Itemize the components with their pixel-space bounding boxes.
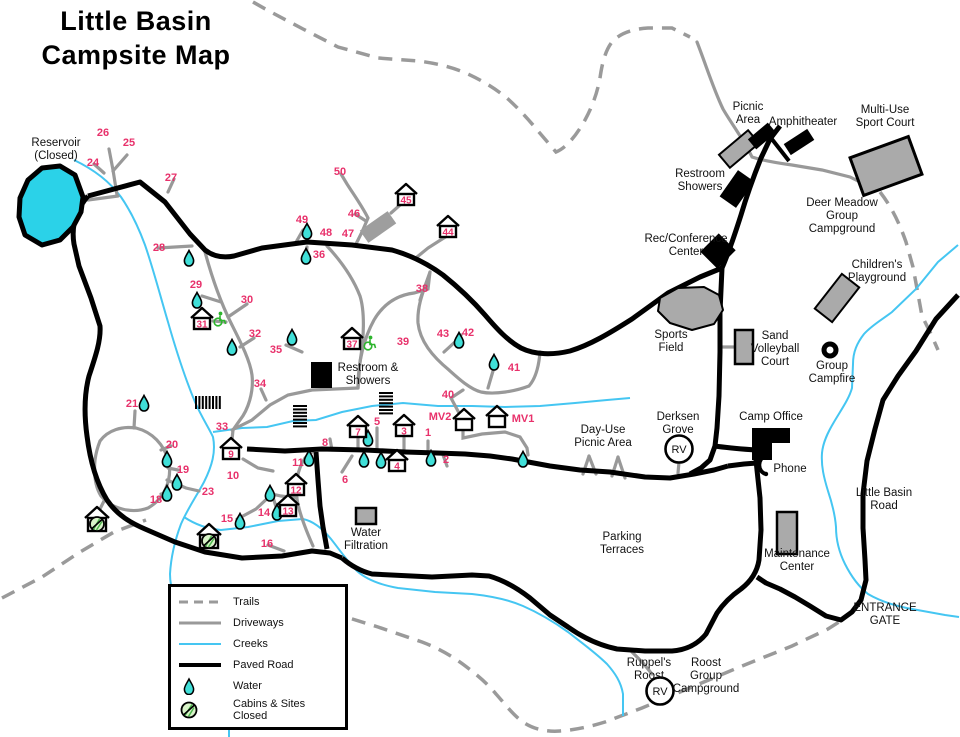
site-number-14: 14 [258,507,271,519]
map-title-line1: Little Basin [8,4,264,38]
site-number-35: 35 [270,344,282,356]
cabin-roof-icon [191,308,213,318]
site-number-25: 25 [123,137,135,149]
water-drop-icon [301,249,310,265]
site-number-10: 10 [227,470,239,482]
site-number-32: 32 [249,328,261,340]
legend-swatch-paved-road [177,656,223,674]
site-number-50: 50 [334,166,346,178]
facility-label-restroom-showers-mid: Restroom &Showers [338,362,399,387]
facility-label-sports-field: SportsField [654,329,687,354]
site-number-33: 33 [216,421,228,433]
facility-label-deer-meadow-group-campground: Deer MeadowGroupCampground [806,197,878,235]
paved-road-path [316,452,327,549]
site-number-41: 41 [508,362,520,374]
site-number-11: 11 [292,457,304,469]
camp-office-building [752,428,790,460]
site-number-34: 34 [254,378,267,390]
cabin-number-7: 7 [355,428,361,439]
legend-row-water: Water [177,677,339,695]
sports-field-area [658,287,723,330]
driveway-path [488,371,493,388]
facility-label-amphitheater: Amphitheater [769,116,838,128]
site-number-39: 39 [397,336,409,348]
legend-swatch-trails [177,593,223,611]
cabin [453,409,475,430]
site-number-28: 28 [153,242,165,254]
cabin-roof-icon [395,184,417,194]
water-drop-icon [287,330,296,346]
cabin-roof-icon [341,328,363,338]
facility-label-picnic-area: PicnicArea [733,101,764,126]
cabin-body-icon [489,416,505,427]
map-title-line2: Campsite Map [8,38,264,72]
rv-badge-text: RV [652,686,668,698]
restroom-showers-mid-building [311,362,332,388]
map-canvas: 3479121331374445RVRVReservoir(Closed)Res… [0,0,960,737]
trail-path [2,520,146,598]
site-number-MV2: MV2 [429,411,452,423]
driveway-path [134,411,135,428]
legend-swatch-cabins-closed [177,701,223,719]
cabin-9: 9 [220,438,242,461]
driveway-path [417,236,447,257]
driveway-path [261,389,266,400]
multi-use-sport-court-area [850,137,922,196]
stairs-icon [379,393,393,413]
water-drop-icon [359,452,368,468]
water-filtration-building [356,508,376,524]
water-drop-icon [162,452,171,468]
legend-box: TrailsDrivewaysCreeksPaved RoadWaterCabi… [168,584,348,730]
site-number-48: 48 [320,227,332,239]
trail-path [253,2,690,152]
cabin-roof-icon [393,415,415,425]
cabin [486,406,508,427]
legend-swatch-driveways [177,614,223,632]
facility-label-entrance-gate: ENTRANCEGATE [853,602,917,627]
cabin-number-44: 44 [442,228,454,239]
site-number-42: 42 [462,327,474,339]
facility-label-parking-terraces: ParkingTerraces [600,531,644,556]
paved-road-path [728,463,757,466]
legend-row-paved-road: Paved Road [177,656,339,674]
driveway-path [286,345,302,352]
paved-road-path [715,446,755,450]
driveway-path [697,42,872,188]
facility-label-group-campfire: GroupCampfire [809,360,856,385]
legend-label-paved-road: Paved Road [233,659,294,671]
water-drop-icon [227,340,236,356]
closed-cabin-icon [85,507,109,531]
site-number-29: 29 [190,279,202,291]
driveway-path [342,456,352,472]
site-number-5: 5 [374,416,380,428]
wheelchair-icon [214,312,225,326]
map-title: Little Basin Campsite Map [8,4,264,72]
paved-road-path [88,182,722,354]
legend-row-creeks: Creeks [177,635,339,653]
water-drop-icon [172,475,181,491]
legend-label-trails: Trails [233,596,259,608]
site-number-16: 16 [261,538,273,550]
facility-label-multi-use-sport-court: Multi-UseSport Court [856,104,916,129]
site-number-30: 30 [241,294,253,306]
cabin-12: 12 [285,474,307,497]
cabin-number-9: 9 [228,450,234,461]
cabin-number-12: 12 [290,486,302,497]
stairs-icon [196,396,220,409]
cabin-45: 45 [395,184,417,207]
cabin-7: 7 [347,416,369,439]
cabin-31: 31 [191,308,213,331]
cabin-body-icon [456,419,472,430]
site-number-21: 21 [126,398,138,410]
site-number-19: 19 [177,464,189,476]
cabin-roof-icon [220,438,242,448]
cabin-roof-icon [285,474,307,484]
cabin-37: 37 [341,328,363,351]
stairs-icon [293,406,307,426]
legend-row-driveways: Driveways [177,614,339,632]
site-number-46: 46 [348,208,360,220]
site-number-15: 15 [221,513,233,525]
rv-badge-text: RV [671,444,687,456]
site-number-49: 49 [296,214,308,226]
water-drop-icon [184,251,193,267]
water-drop-icon [162,486,171,502]
facility-label-phone: Phone [773,463,806,475]
legend-row-trails: Trails [177,593,339,611]
driveway-path [243,459,273,471]
site-number-2: 2 [443,454,449,466]
phone-icon [759,454,768,476]
site-number-36: 36 [313,249,325,261]
site-number-6: 6 [342,474,348,486]
site-number-20: 20 [166,439,178,451]
facility-label-sand-volleyball-court: SandVolleyballCourt [751,330,800,368]
water-drop-icon [139,396,148,412]
site-number-47: 47 [342,228,354,240]
water-drop-icon [265,486,274,502]
facility-label-camp-office: Camp Office [739,411,803,423]
legend-swatch-water [177,677,223,695]
water-drop-icon [192,293,201,309]
campsite-map: 3479121331374445RVRVReservoir(Closed)Res… [0,0,960,737]
facility-label-roost-group-campground: RoostGroupCampground [673,657,739,695]
cabin-roof-icon [347,416,369,426]
site-number-1: 1 [425,427,431,439]
site-number-18: 18 [150,494,162,506]
water-drop-icon [489,355,498,371]
facility-label-childrens-playground: Children'sPlayground [848,259,906,284]
cabin-number-45: 45 [400,196,412,207]
picnic-structure-2 [784,129,815,155]
legend-label-driveways: Driveways [233,617,284,629]
cabin-3: 3 [393,415,415,438]
cabin-number-4: 4 [394,462,400,473]
site-number-MV1: MV1 [512,413,535,425]
legend-label-cabins-closed: Cabins & Sites Closed [233,698,339,722]
legend-label-water: Water [233,680,262,692]
facility-label-maintenance-center: MaintenanceCenter [764,548,830,573]
cabin-44: 44 [437,216,459,239]
trail-path [330,612,839,731]
cabin-number-13: 13 [282,507,294,518]
site-number-23: 23 [202,486,214,498]
site-number-27: 27 [165,172,177,184]
facility-label-restroom-showers-top: RestroomShowers [675,168,725,193]
legend-swatch-creeks [177,635,223,653]
facility-label-day-use-picnic-area: Day-UsePicnic Area [574,424,632,449]
driveway-path [113,155,127,171]
group-campfire-ring [824,344,836,356]
facility-label-derksen-grove: DerksenGrove [657,411,700,436]
rv-badge: RV [666,436,693,463]
closed-cabin-icon [197,524,221,548]
cabin-roof-icon [437,216,459,226]
cabin-number-3: 3 [401,427,407,438]
site-number-8: 8 [322,437,328,449]
site-number-26: 26 [97,127,109,139]
water-drop-icon [376,453,385,469]
site-number-40: 40 [442,389,454,401]
facility-label-reservoir: Reservoir(Closed) [31,137,80,162]
site-number-24: 24 [87,157,100,169]
facility-label-water-filtration: WaterFiltration [344,527,388,552]
site-number-38: 38 [416,283,428,295]
site-number-43: 43 [437,328,449,340]
legend-row-cabins-closed: Cabins & Sites Closed [177,698,339,722]
cabin-number-31: 31 [196,320,208,331]
cabin-number-37: 37 [346,340,358,351]
legend-label-creeks: Creeks [233,638,268,650]
